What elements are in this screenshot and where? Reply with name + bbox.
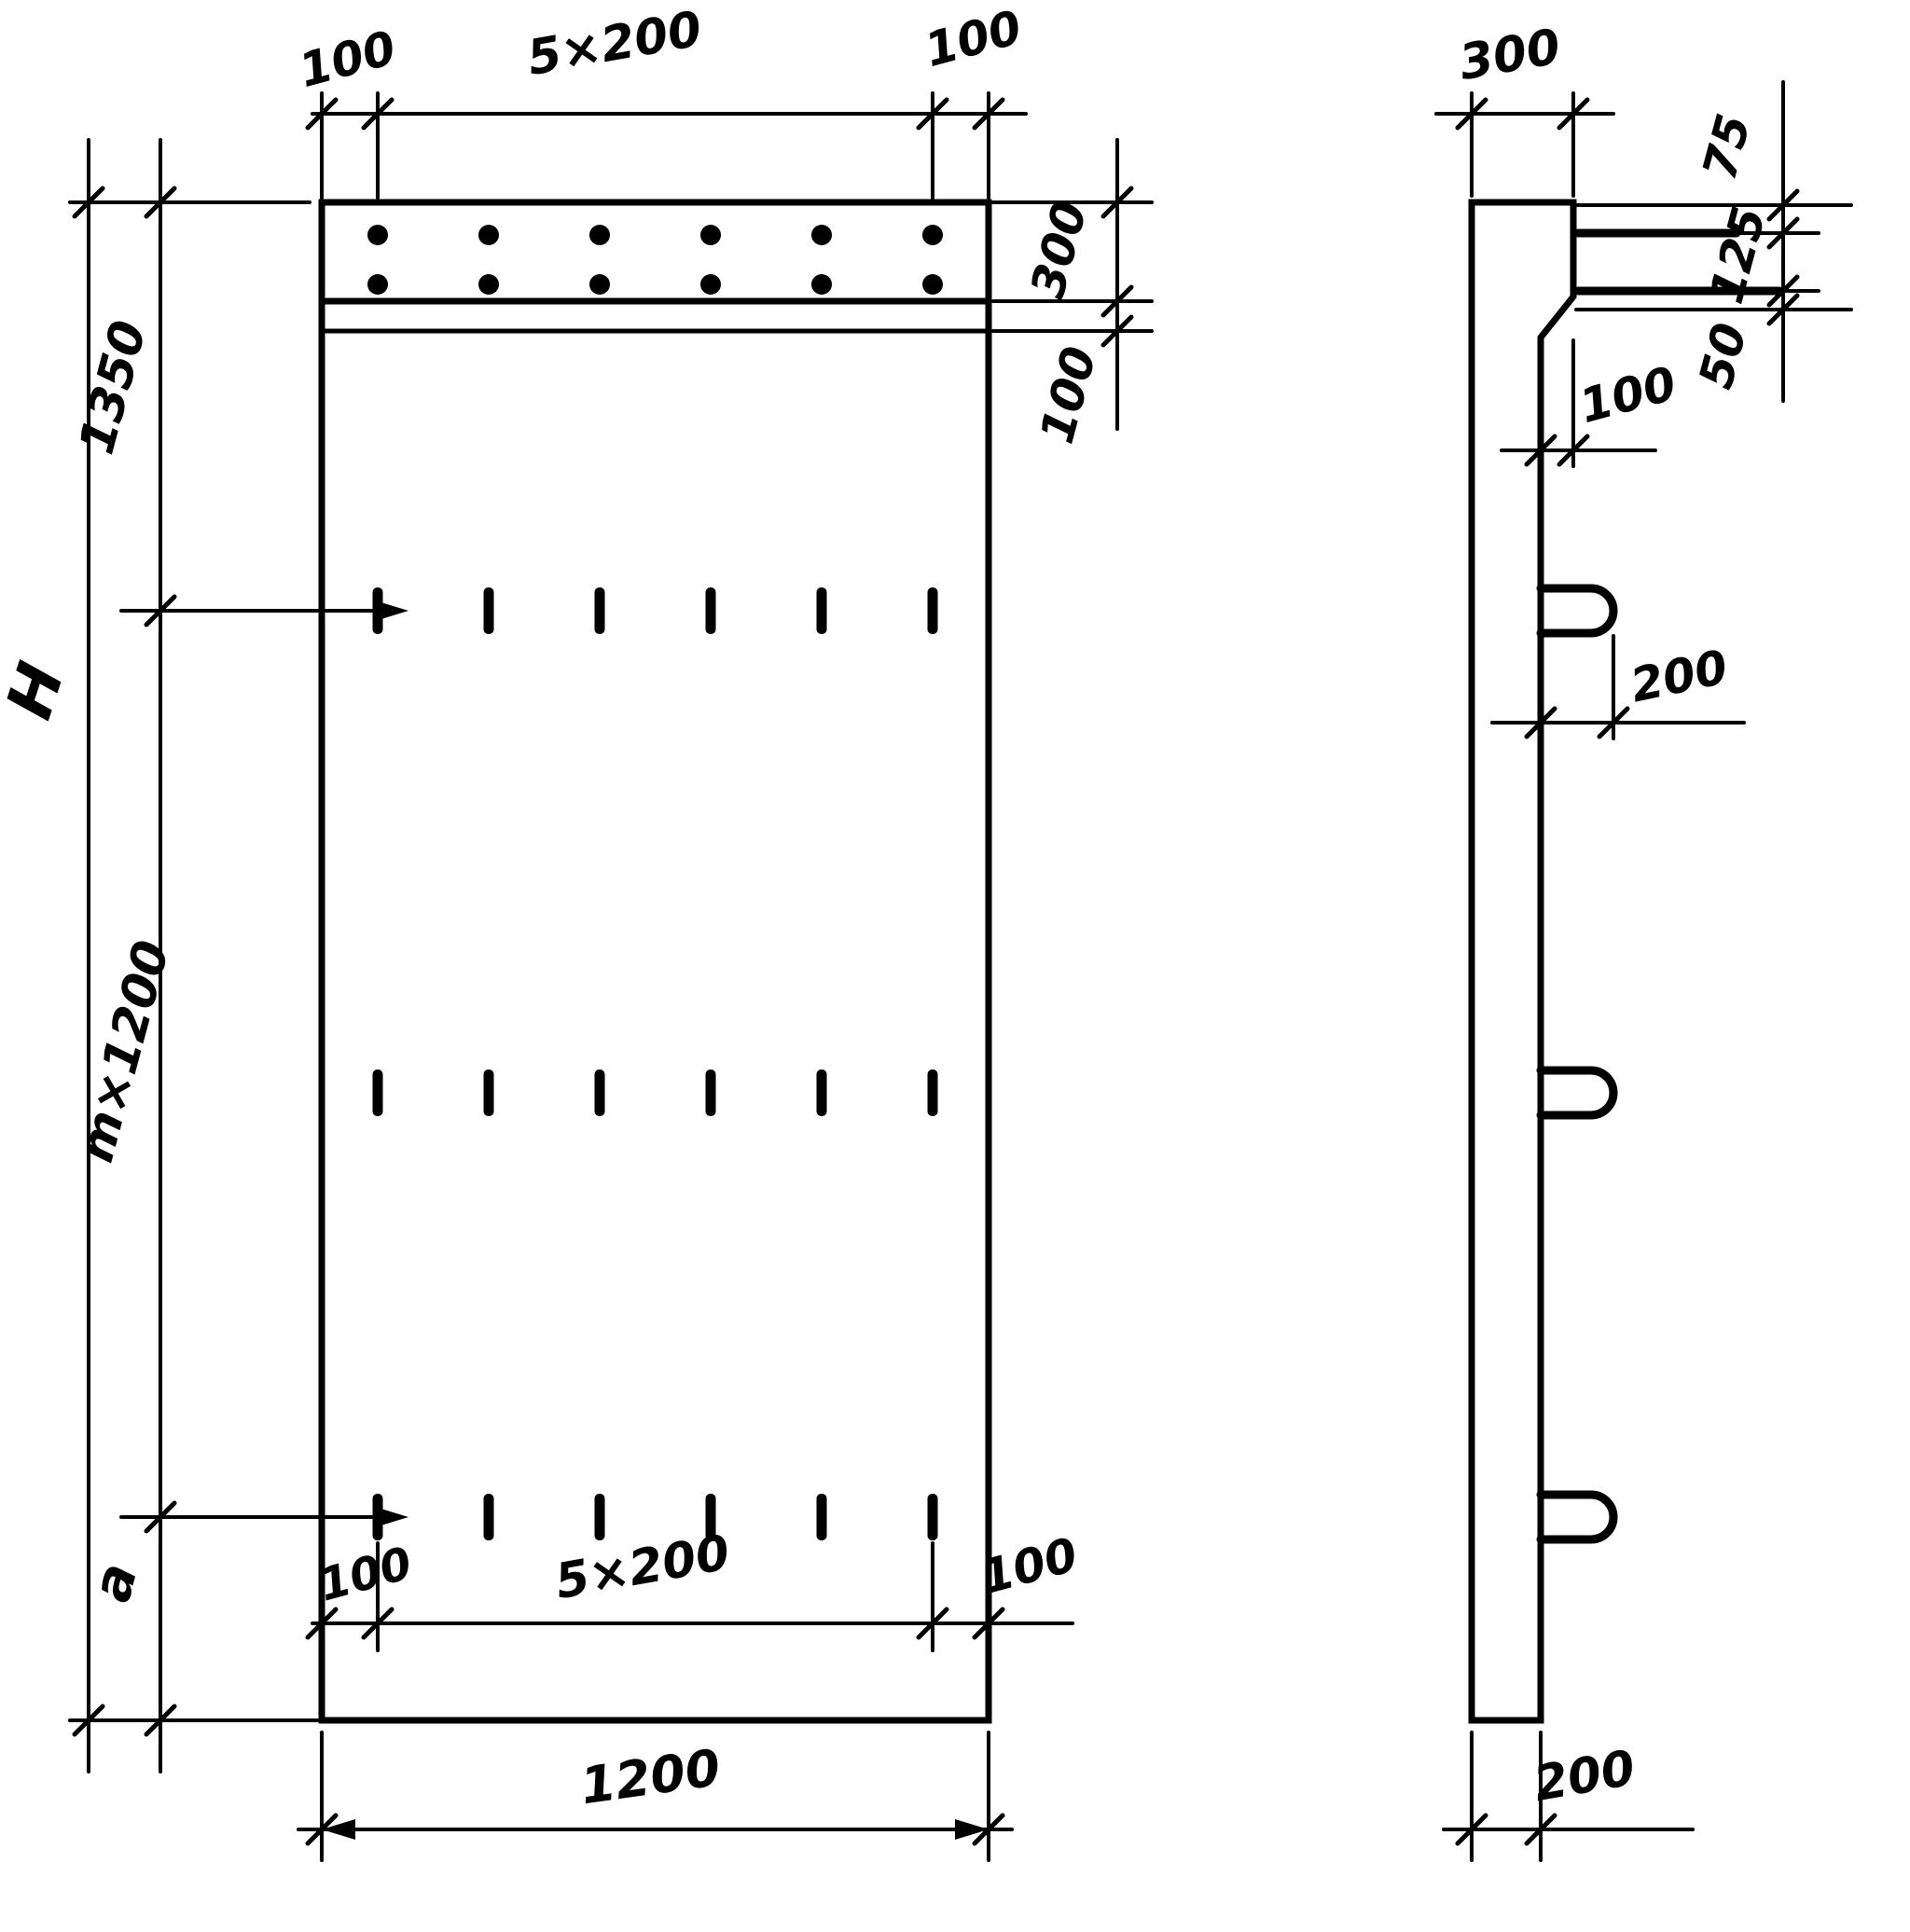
dim-label-front-left-1350: 1350: [69, 315, 158, 460]
anchor-dot: [811, 274, 832, 295]
dim-label-front-left-H: H: [0, 655, 79, 728]
anchor-dots: [367, 225, 943, 295]
dim-label-front-bottom-1200: 1200: [577, 1738, 725, 1815]
front-panel-outline: [322, 202, 989, 1720]
dim-label-side-hook-200: 200: [1626, 640, 1732, 712]
hook-mark-dash: [484, 587, 494, 634]
hook-mark-dash: [373, 1069, 383, 1116]
hook-mark-dash: [706, 587, 716, 634]
anchor-dot: [700, 274, 721, 295]
anchor-dot: [589, 274, 610, 295]
lifting-hook: [1541, 1495, 1613, 1539]
hook-marks: [373, 587, 938, 1540]
dim-label-front-left-mx1200: m×1200: [68, 935, 181, 1168]
hook-mark-dash: [595, 1494, 605, 1540]
hook-mark-dash: [595, 1069, 605, 1116]
hook-mark-dash: [928, 1494, 938, 1540]
dim-label-front-top-right-100: 100: [920, 0, 1028, 77]
lifting-hook: [1541, 588, 1613, 633]
dim-label-side-bottom-200: 200: [1529, 1740, 1639, 1813]
dimension-labels: 1005×200100300100H1350m×1200a1005×200100…: [0, 0, 1777, 1815]
dim-label-front-top-5x200: 5×200: [523, 1, 706, 87]
anchor-dot: [367, 274, 388, 295]
hook-mark-dash: [817, 1069, 827, 1116]
dim-label-side-step-100: 100: [1574, 356, 1682, 434]
anchor-dot: [700, 225, 721, 245]
drawing-page: { "drawing": { "type": "technical-drawin…: [0, 0, 1910, 1932]
side-view: [1436, 82, 1851, 1860]
technical-drawing: 1005×200100300100H1350m×1200a1005×200100…: [0, 0, 1910, 1932]
dim-label-front-right-100: 100: [1030, 341, 1107, 449]
hook-mark-dash: [817, 587, 827, 634]
dim-label-front-right-300: 300: [1020, 196, 1098, 304]
panel-outline: [322, 202, 989, 1720]
dim-label-front-top-left-100: 100: [294, 21, 402, 98]
hook-mark-dash: [706, 1069, 716, 1116]
anchor-dot: [367, 225, 388, 245]
hook-mark-dash: [484, 1494, 494, 1540]
dim-label-front-bottom-5x200: 5×200: [551, 1525, 734, 1610]
hook-mark-dash: [817, 1494, 827, 1540]
dim-label-side-top-300: 300: [1455, 19, 1564, 91]
anchor-dot: [922, 225, 943, 245]
hook-mark-dash: [928, 1069, 938, 1116]
hook-mark-dash: [484, 1069, 494, 1116]
anchor-dot: [811, 225, 832, 245]
dim-label-side-right-50: 50: [1689, 317, 1758, 393]
hook-mark-dash: [928, 587, 938, 634]
dim-label-front-bottom-left-100: 100: [313, 1538, 417, 1612]
hook-mark-dash: [595, 587, 605, 634]
anchor-dot: [478, 225, 499, 245]
anchor-dot: [478, 274, 499, 295]
anchor-dot: [589, 225, 610, 245]
lifting-hook: [1541, 1070, 1613, 1115]
anchor-dot: [922, 274, 943, 295]
dim-label-side-right-75: 75: [1693, 108, 1762, 185]
